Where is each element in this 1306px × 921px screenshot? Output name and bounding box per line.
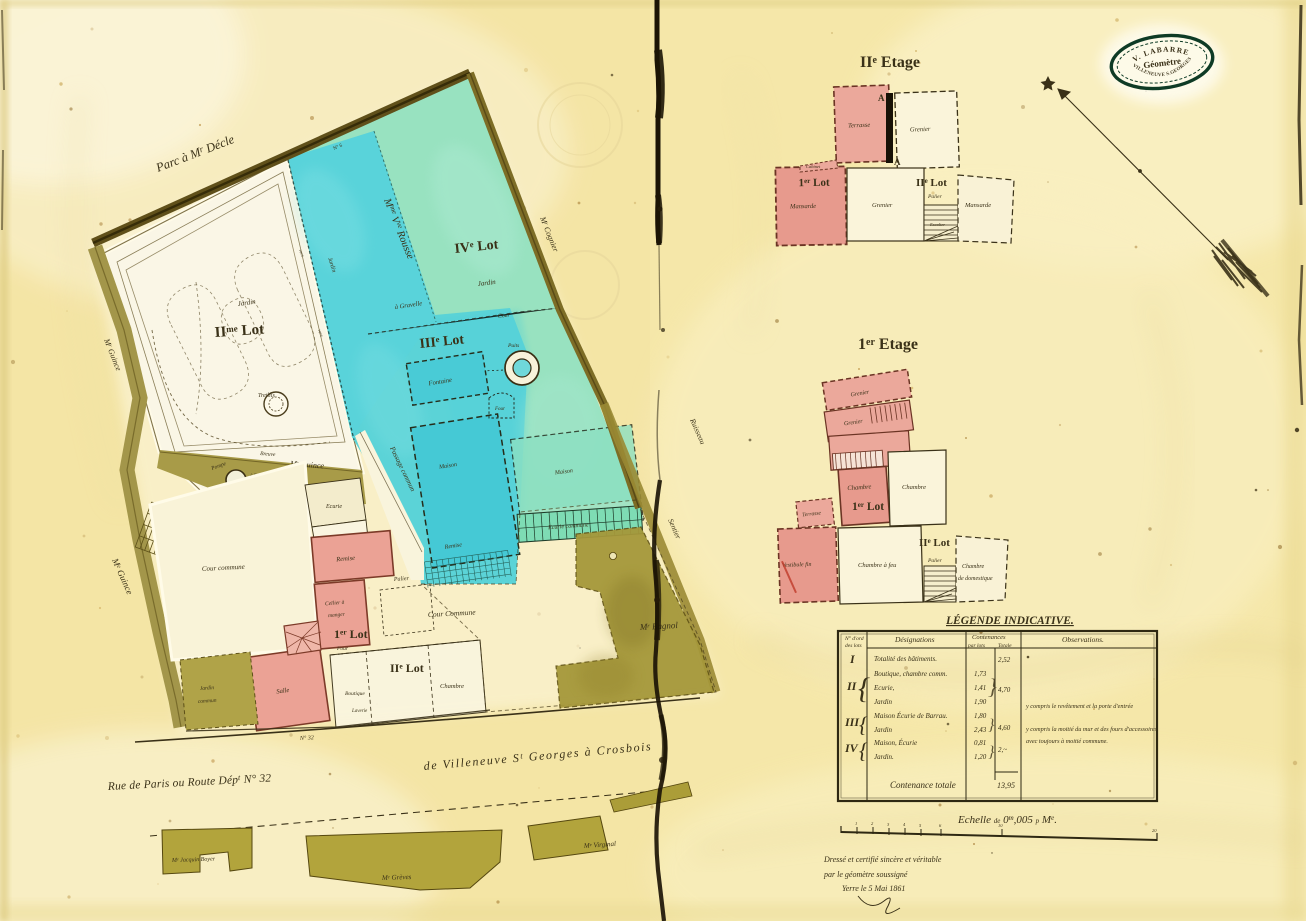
svg-text:{: {: [859, 712, 868, 737]
svg-text:Terrasse: Terrasse: [848, 122, 871, 130]
svg-text:1: 1: [855, 821, 857, 826]
svg-text:Echelle de 0m,005 p Me.: Echelle de 0m,005 p Me.: [957, 814, 1057, 826]
svg-text:A: A: [894, 157, 901, 167]
svg-text:IIe Etage: IIe Etage: [860, 54, 920, 71]
svg-text:Ecurie,: Ecurie,: [873, 684, 895, 692]
svg-text:1,90: 1,90: [974, 698, 987, 706]
svg-text:Contenances: Contenances: [972, 634, 1006, 641]
svg-text:A: A: [878, 93, 885, 103]
svg-text:1,20: 1,20: [974, 753, 987, 761]
svg-text:Chambre: Chambre: [962, 564, 984, 570]
svg-text:II: II: [846, 679, 858, 693]
svg-text:10: 10: [998, 823, 1003, 828]
svg-text:Boutique: Boutique: [345, 691, 365, 697]
svg-text:Maison, Écurie: Maison, Écurie: [873, 739, 917, 747]
svg-text:Me Grèves: Me Grèves: [381, 873, 412, 882]
svg-text:IIe Lot: IIe Lot: [919, 537, 950, 549]
svg-text:0,81: 0,81: [974, 739, 986, 747]
svg-text:2,~: 2,~: [998, 746, 1007, 754]
svg-text:Grenier: Grenier: [872, 202, 893, 209]
svg-text:Vestibule fin: Vestibule fin: [782, 561, 812, 569]
svg-text:1,80: 1,80: [974, 712, 987, 720]
svg-text:13,95: 13,95: [997, 781, 1015, 790]
svg-text:20: 20: [1152, 828, 1157, 833]
svg-text:IIe Lot: IIe Lot: [916, 177, 947, 189]
svg-text:Chambre à feu: Chambre à feu: [858, 562, 897, 569]
svg-text:Maison Écurie de Barrau.: Maison Écurie de Barrau.: [873, 712, 948, 720]
svg-text:}: }: [988, 744, 995, 761]
svg-text:1er Lot: 1er Lot: [799, 177, 831, 190]
svg-text:Escalier: Escalier: [929, 222, 945, 227]
svg-text:Boutique, chambre comm.: Boutique, chambre comm.: [874, 670, 947, 678]
svg-text:Observations.: Observations.: [1062, 635, 1104, 644]
svg-text:Jardin: Jardin: [874, 698, 893, 706]
svg-text:III: III: [844, 715, 860, 729]
svg-text:Ecurie: Ecurie: [325, 504, 342, 510]
svg-text:Laverie: Laverie: [351, 709, 368, 714]
svg-text:IV: IV: [844, 741, 859, 755]
svg-text:Four: Four: [494, 407, 505, 412]
svg-text:Treillis: Treillis: [258, 393, 275, 399]
svg-text:de domestique: de domestique: [958, 576, 993, 582]
svg-text:Breuve: Breuve: [260, 451, 276, 458]
svg-text:par le géomètre soussigné: par le géomètre soussigné: [823, 870, 908, 879]
svg-text:Palier: Palier: [393, 576, 410, 583]
svg-text:1,73: 1,73: [974, 670, 987, 678]
svg-text:N° d'ord: N° d'ord: [844, 635, 864, 642]
svg-text:N° 32: N° 32: [299, 734, 314, 742]
svg-text:y compris le revêtement et la: y compris le revêtement et la porte d'en…: [1025, 703, 1133, 710]
svg-text:1er Lot: 1er Lot: [852, 501, 884, 513]
svg-text:Chambre: Chambre: [440, 683, 464, 690]
svg-text:Jardin.: Jardin.: [874, 753, 894, 761]
svg-text:IIe Lot: IIe Lot: [390, 661, 424, 675]
svg-text:des lots: des lots: [845, 643, 862, 649]
svg-text:4,70: 4,70: [998, 686, 1011, 694]
svg-text:{: {: [858, 672, 870, 705]
svg-text:2,52: 2,52: [998, 656, 1011, 664]
svg-text:Jardin: Jardin: [874, 726, 893, 734]
svg-text:Grenier: Grenier: [910, 126, 931, 134]
svg-text:1er Lot: 1er Lot: [334, 627, 368, 641]
svg-text:Cabinet: Cabinet: [806, 164, 821, 169]
svg-text:par lots: par lots: [967, 643, 985, 649]
svg-text:Mansarde: Mansarde: [964, 202, 991, 209]
svg-text:Four: Four: [336, 646, 349, 652]
svg-text:}: }: [988, 674, 997, 699]
svg-text:Palier: Palier: [927, 558, 943, 564]
svg-text:1,41: 1,41: [974, 684, 986, 692]
svg-text:Contenance totale: Contenance totale: [890, 780, 956, 790]
svg-text:Yerre le 5 Mai 1861: Yerre le 5 Mai 1861: [842, 884, 905, 893]
svg-text:Mansarde: Mansarde: [789, 203, 816, 210]
svg-text:Jardin: Jardin: [200, 685, 215, 692]
svg-text:avec toujours à moitié commune: avec toujours à moitié commune.: [1026, 738, 1108, 745]
svg-text:Désignations: Désignations: [894, 635, 935, 644]
svg-text:2,43: 2,43: [974, 726, 987, 734]
svg-text:LÉGENDE INDICATIVE.: LÉGENDE INDICATIVE.: [945, 613, 1074, 627]
svg-text:Dressé et certifié sincère et: Dressé et certifié sincère et véritable: [823, 855, 942, 864]
svg-text:Totalité des bâtiments.: Totalité des bâtiments.: [874, 655, 937, 663]
svg-text:4,60: 4,60: [998, 724, 1011, 732]
svg-text:Totale: Totale: [998, 643, 1012, 649]
svg-text:Puits: Puits: [507, 343, 519, 349]
svg-text:}: }: [988, 717, 995, 734]
svg-text:y compris la moitié du mur et: y compris la moitié du mur et des fours …: [1025, 726, 1158, 733]
svg-text:Palier: Palier: [927, 194, 943, 200]
svg-text:Chambre: Chambre: [902, 484, 926, 491]
svg-text:{: {: [859, 738, 868, 763]
